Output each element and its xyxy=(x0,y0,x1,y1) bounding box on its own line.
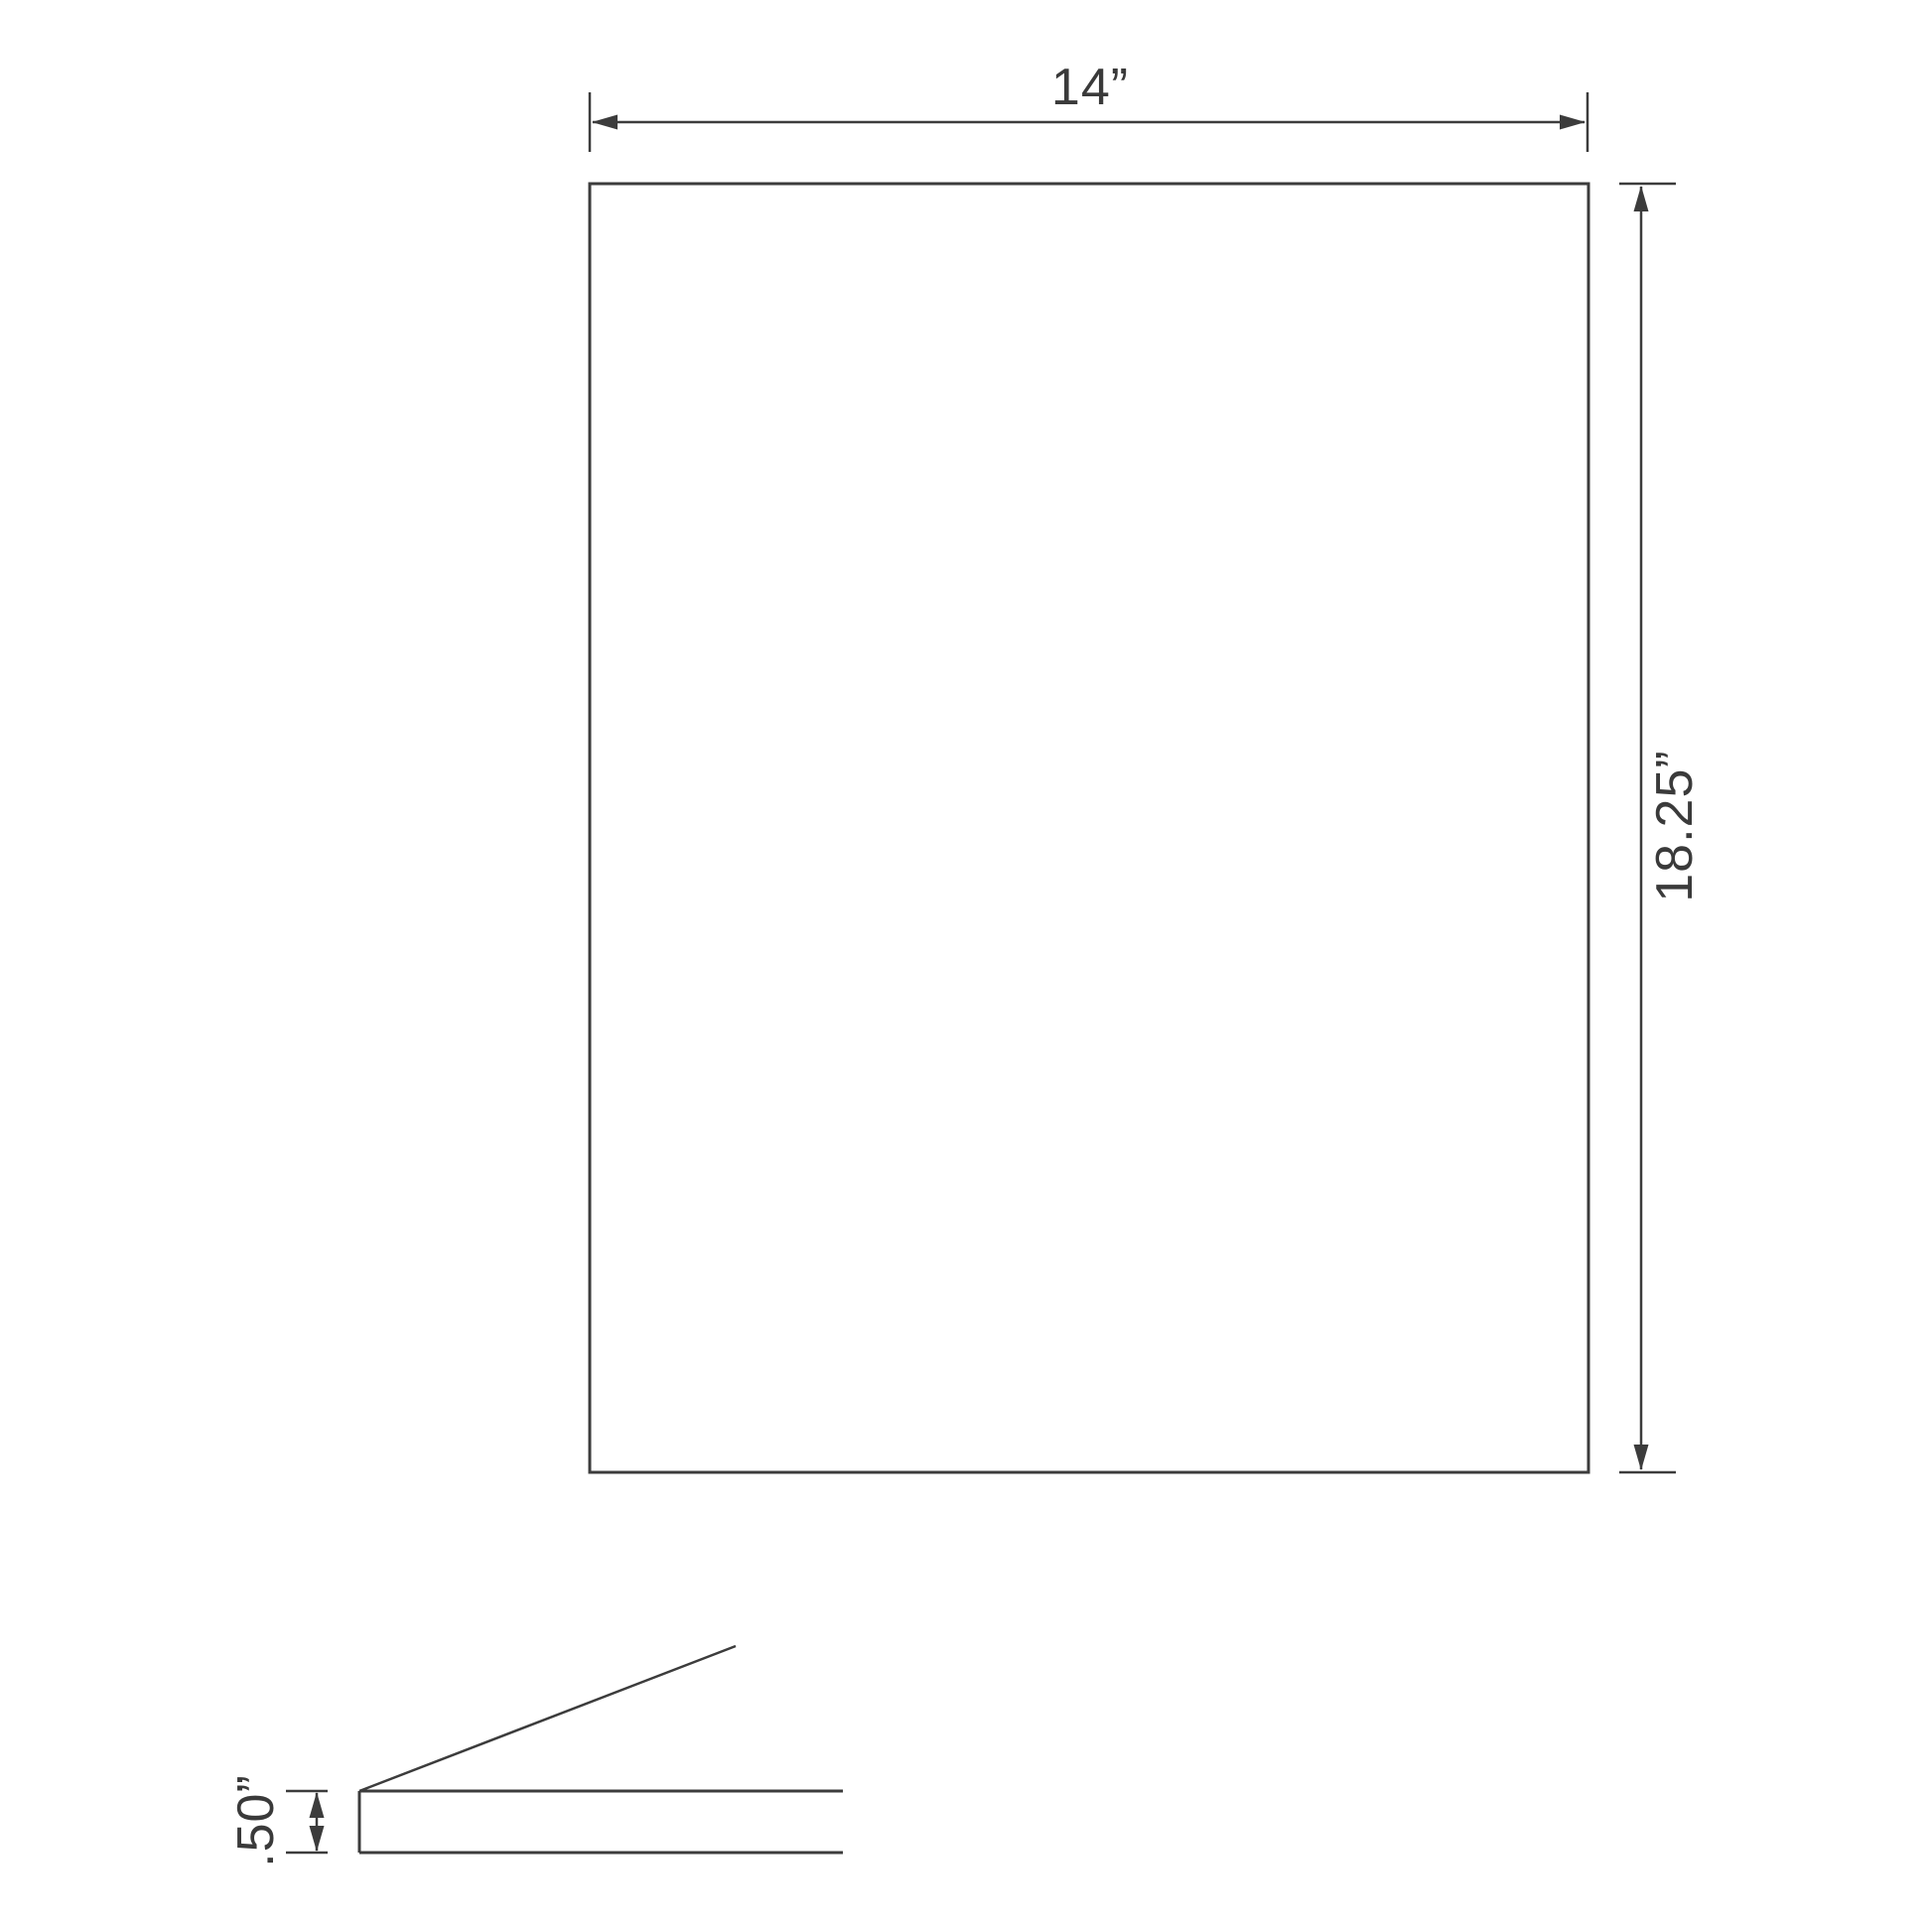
thickness-arrowhead-top xyxy=(310,1792,325,1818)
thickness-dimension-label: .50” xyxy=(227,1774,285,1867)
technical-dimension-drawing: 14” 18.25” .50” xyxy=(0,0,1932,1932)
side-view-flap-line xyxy=(359,1646,736,1791)
height-arrowhead-bottom xyxy=(1634,1445,1649,1470)
width-arrowhead-right xyxy=(1560,115,1586,130)
thickness-arrowhead-bottom xyxy=(310,1826,325,1852)
width-dimension-label: 14” xyxy=(1051,59,1129,116)
width-arrowhead-left xyxy=(592,115,618,130)
height-dimension-label: 18.25” xyxy=(1646,750,1704,901)
spec-drawing-canvas: 14” 18.25” .50” xyxy=(0,0,1932,1932)
front-view-panel-outline xyxy=(590,184,1588,1472)
height-arrowhead-top xyxy=(1634,186,1649,211)
